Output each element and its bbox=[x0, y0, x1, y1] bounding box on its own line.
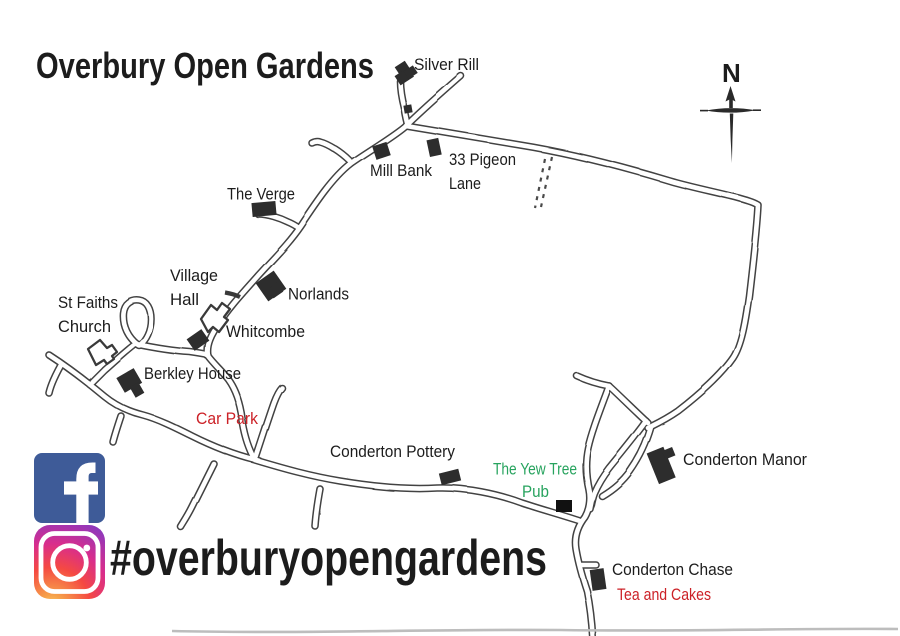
svg-text:Conderton Pottery: Conderton Pottery bbox=[330, 443, 456, 461]
svg-text:N: N bbox=[722, 58, 741, 88]
svg-text:Church: Church bbox=[58, 318, 111, 336]
svg-text:The Verge: The Verge bbox=[227, 186, 295, 204]
svg-text:Tea and Cakes: Tea and Cakes bbox=[617, 586, 711, 604]
svg-text:Mill Bank: Mill Bank bbox=[370, 162, 433, 180]
svg-text:Lane: Lane bbox=[449, 175, 481, 193]
svg-text:Silver Rill: Silver Rill bbox=[414, 56, 479, 74]
svg-text:Pub: Pub bbox=[522, 483, 549, 501]
svg-text:St Faiths: St Faiths bbox=[58, 294, 118, 312]
svg-text:Overbury Open Gardens: Overbury Open Gardens bbox=[36, 45, 374, 86]
svg-text:#overburyopengardens: #overburyopengardens bbox=[110, 530, 547, 586]
svg-text:33 Pigeon: 33 Pigeon bbox=[449, 151, 516, 169]
svg-text:Conderton Manor: Conderton Manor bbox=[683, 451, 808, 469]
svg-text:Berkley House: Berkley House bbox=[144, 365, 241, 383]
svg-text:Car Park: Car Park bbox=[196, 410, 259, 428]
svg-text:Hall: Hall bbox=[170, 291, 199, 309]
svg-text:Whitcombe: Whitcombe bbox=[226, 323, 305, 341]
svg-text:Conderton Chase: Conderton Chase bbox=[612, 561, 733, 579]
svg-text:Norlands: Norlands bbox=[288, 286, 349, 304]
svg-text:The Yew Tree: The Yew Tree bbox=[493, 461, 577, 479]
svg-text:Village: Village bbox=[170, 267, 218, 285]
